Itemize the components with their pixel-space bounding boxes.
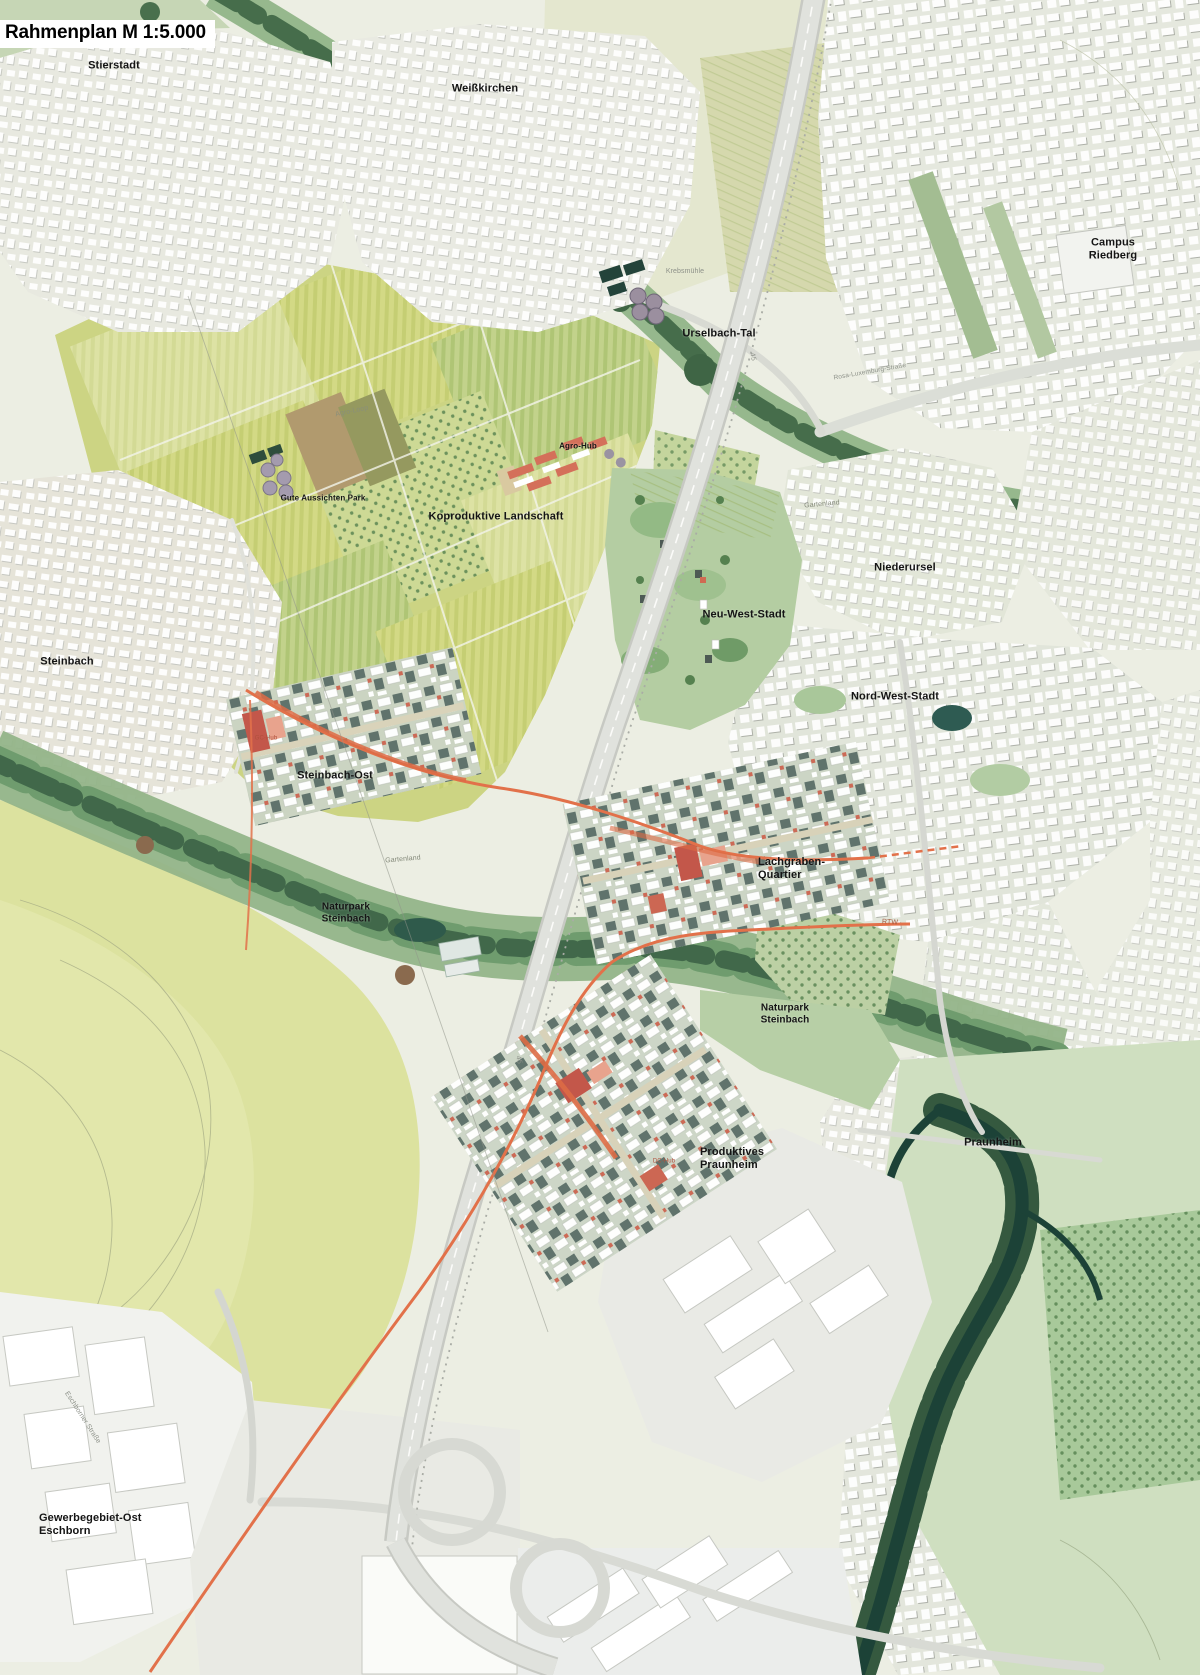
map-title: Rahmenplan M 1:5.000 (0, 20, 215, 48)
urban-riedberg (818, 0, 1200, 432)
pond-nord-west (932, 705, 972, 731)
map-canvas (0, 0, 1200, 1675)
rahmenplan-map: StierstadtWeißkirchenCampus RiedbergUrse… (0, 0, 1200, 1675)
